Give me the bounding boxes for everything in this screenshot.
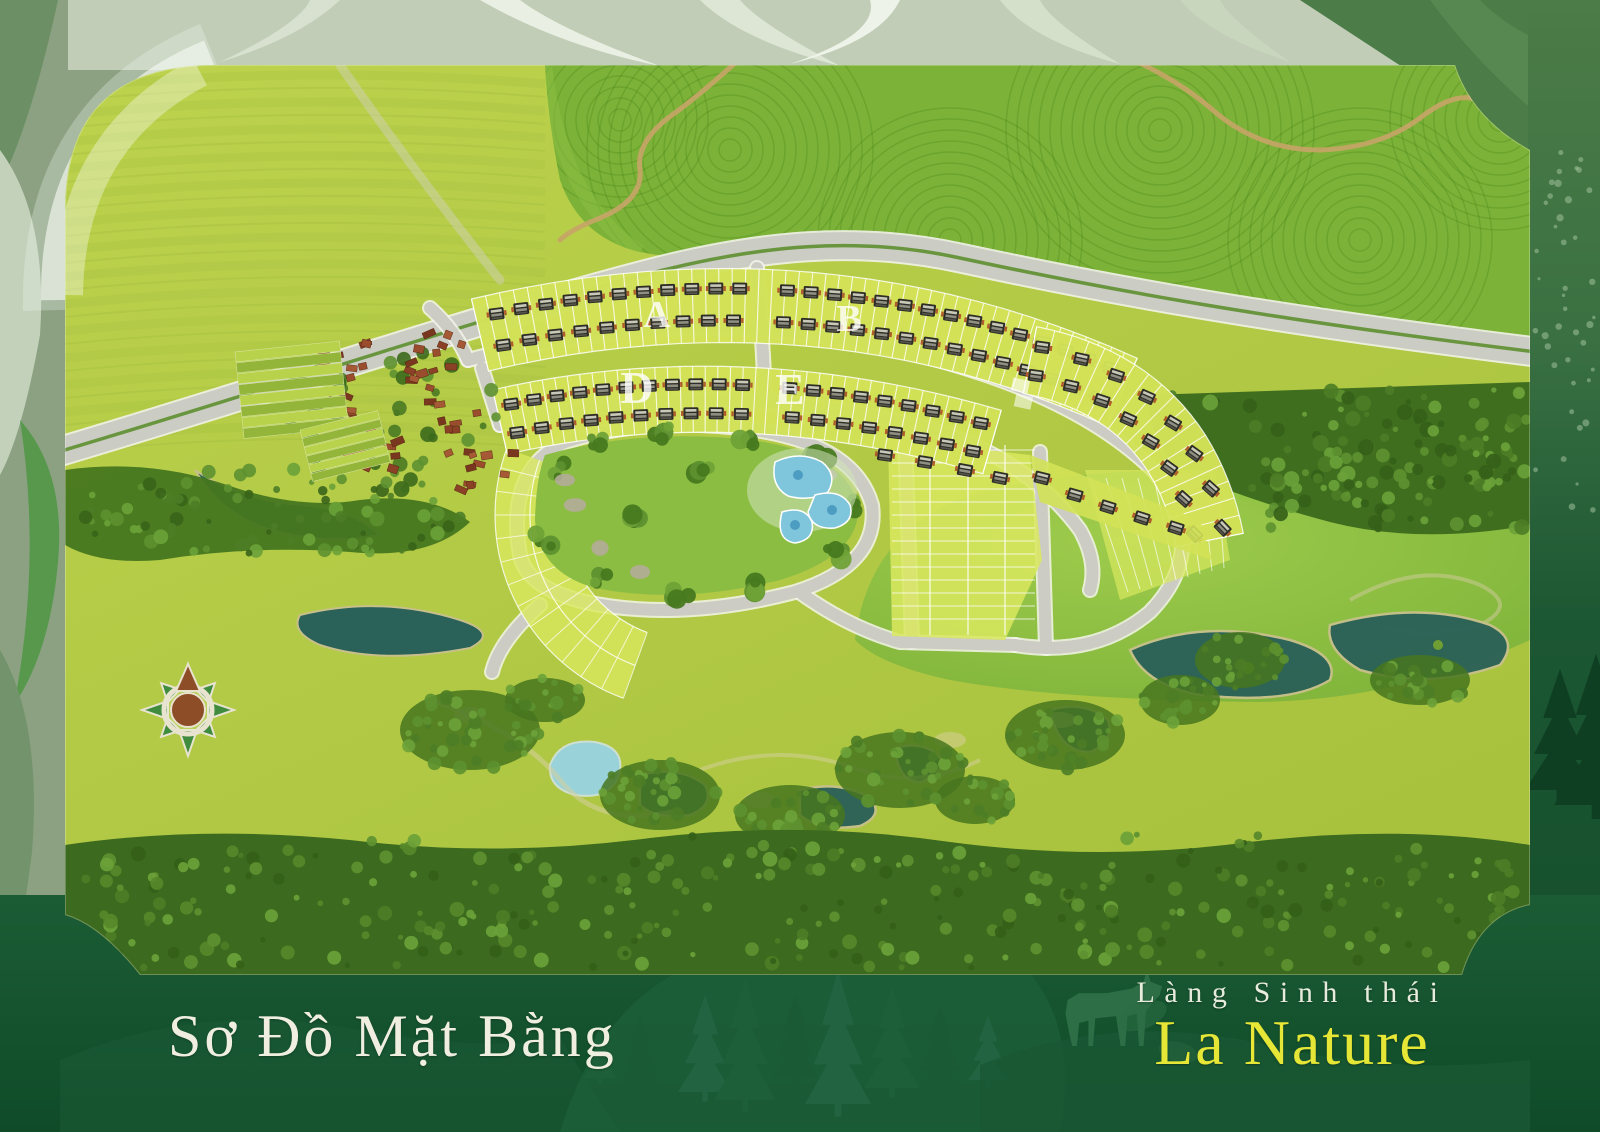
zone-label-d: D [620,362,653,413]
brand-block: Làng Sinh thái La Nature [1092,976,1492,1075]
bottom-forest [65,830,1530,975]
poster-canvas: A B D E Sơ Đồ Mặt Bằng Làng Sinh thái La… [0,0,1600,1132]
zone-label-a: A [643,294,671,336]
site-plan-map: A B D E [0,0,1600,1132]
project-name: La Nature [1092,1010,1492,1075]
zone-label-e: E [775,365,804,414]
map-content: A B D E [58,0,1600,975]
zone-label-b: B [836,298,861,340]
project-tagline: Làng Sinh thái [1092,976,1492,1010]
plan-title: Sơ Đồ Mặt Bằng [168,1002,668,1071]
